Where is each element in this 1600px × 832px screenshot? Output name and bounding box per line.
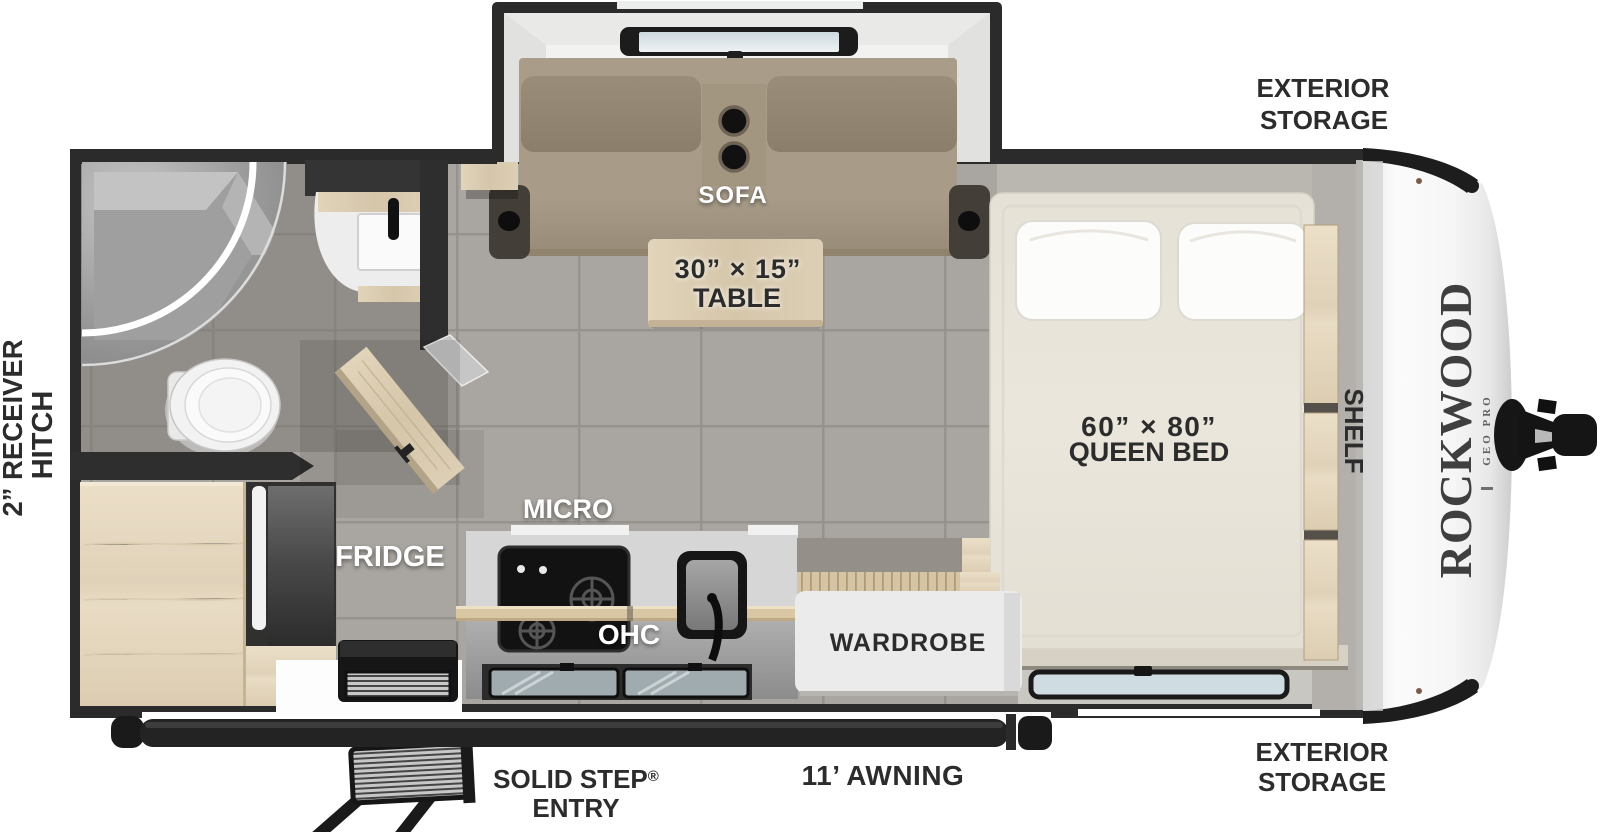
svg-text:11’ AWNING: 11’ AWNING (802, 760, 965, 791)
svg-text:ROCKWOOD: ROCKWOOD (1430, 282, 1481, 579)
svg-text:EXTERIOR: EXTERIOR (1256, 737, 1389, 767)
svg-text:SOFA: SOFA (698, 182, 767, 209)
svg-text:OHC: OHC (598, 619, 660, 650)
svg-text:MICRO: MICRO (523, 494, 613, 524)
svg-text:ENTRY: ENTRY (532, 793, 619, 823)
svg-text:TABLE: TABLE (693, 283, 781, 313)
svg-text:SOLID STEP®: SOLID STEP® (493, 764, 659, 794)
svg-text:QUEEN BED: QUEEN BED (1069, 437, 1230, 467)
svg-text:HITCH: HITCH (27, 391, 59, 480)
svg-text:STORAGE: STORAGE (1260, 105, 1388, 135)
svg-text:EXTERIOR: EXTERIOR (1257, 73, 1390, 103)
svg-text:GEO PRO: GEO PRO (1481, 394, 1493, 465)
svg-text:2” RECEIVER: 2” RECEIVER (0, 339, 28, 516)
svg-text:STORAGE: STORAGE (1258, 767, 1386, 797)
svg-text:WARDROBE: WARDROBE (830, 629, 987, 657)
svg-text:FRIDGE: FRIDGE (335, 541, 445, 573)
svg-text:30” × 15”: 30” × 15” (675, 254, 802, 284)
svg-text:SHELF: SHELF (1339, 388, 1369, 473)
